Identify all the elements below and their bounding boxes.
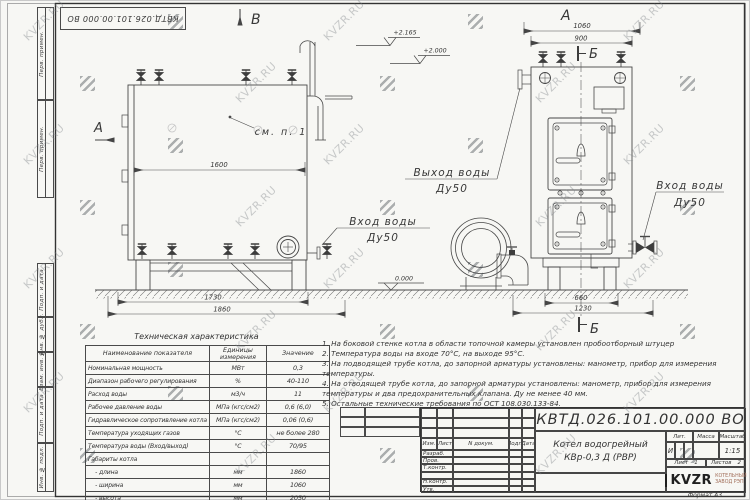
ground-line [95,290,688,299]
outlet-label: Выход воды [414,167,491,179]
col-list: Лист [437,438,453,450]
table-cell: 70/95 [266,440,329,453]
table-cell [209,453,266,466]
table-cell: - ширина [86,479,210,492]
col-izm: Изм. [421,438,437,450]
table-cell: 40-110 [266,375,329,388]
sheet-value: 1 [694,460,698,466]
table-cell: МПа (кгс/см2) [209,401,266,414]
table-cell: °С [209,427,266,440]
table-row: Температура уходящих газов°Сне более 280 [86,427,330,440]
dim-660: 660 [575,294,588,302]
table-cell: Гидравлическое сопротивление котла [86,414,210,427]
note-line: 3. На подводящей трубе котла, до запорно… [322,359,743,378]
inlet-side-label: Вход воды [349,216,417,228]
elevation-2165: +2.165 [393,30,416,37]
table-cell: МПа (кгс/см2) [209,414,266,427]
section-marker-b-bottom: Б [590,322,599,337]
lower-door [548,198,615,254]
table-cell: 1060 [266,479,329,492]
margin-box-perv-primen-2: Перв. примен. [37,100,54,198]
tech-table-body: Номинальная мощностьМВт0,3Диапазон рабоч… [86,362,330,500]
table-cell: м3/ч [209,388,266,401]
margin-box-perv-primen-1: Перв. примен. [37,7,54,100]
view-marker-a-front: А [560,8,571,24]
view-markers: В А А Б Б [93,8,599,337]
notes: 1. На боковой стенке котла в области топ… [322,339,743,410]
product-name: Котел водогрейный КВр-0,3 Д (РВР) [535,431,666,473]
top-stamp: КВТД.026.101.00.000 ВО [60,7,186,30]
table-cell: мм [209,479,266,492]
title-block: КВТД.026.101.00.000 ВО Изм. Лист N докум… [420,407,745,492]
table-cell: 0,06 (0,6) [266,414,329,427]
table-row: - ширинамм1060 [86,479,330,492]
table-cell: МВт [209,362,266,375]
inlet-side-dn: Ду50 [366,232,399,244]
upper-door [548,118,615,190]
table-row: Габариты котла [86,453,330,466]
see-note-label: см. п. 1 [255,127,308,138]
lit-value: И [666,442,675,459]
table-row: Рабочее давление водыМПа (кгс/см2)0,6 (6… [86,401,330,414]
margin-label: Инв. № подл. [39,446,45,488]
table-cell: Расход воды [86,388,210,401]
sheets-label: Листов [711,460,732,466]
margin-box-inv-podl: Инв. № подл. [37,443,54,492]
table-cell: °С [209,440,266,453]
drawing-sheet: 1600 1730 1860 1060 900 660 1230 +2.165 … [0,0,750,500]
table-cell: % [209,375,266,388]
dim-1060: 1060 [573,22,590,30]
table-cell: 0,6 (6,0) [266,401,329,414]
table-row: - длинамм1860 [86,466,330,479]
dim-1600: 1600 [210,161,227,169]
margin-box-podp-data-2: Подп. и дата [37,387,54,443]
table-cell: 11 [266,388,329,401]
product-name-line2: КВр-0,3 Д (РВР) [564,452,637,466]
section-marker-b-top: Б [589,47,598,62]
col-ndokum: N докум. [453,438,509,450]
table-cell: Габариты котла [86,453,210,466]
side-view [122,41,352,290]
table-cell: - длина [86,466,210,479]
margin-label: Перв. примен. [39,126,45,172]
margin-label: Подп. и дата [39,394,45,436]
table-cell: Температура уходящих газов [86,427,210,440]
view-marker-v: В [251,12,261,28]
row-tkontr: Т.контр. [421,464,453,471]
margin-box-vzam-inv: Взам. инв. № [37,352,54,387]
format-label: Формат А3 [660,492,750,499]
lit-label: Лит. [666,431,693,442]
valve-icons-side [137,70,331,259]
row-blank [421,472,453,479]
margin-label: Перв. примен. [39,31,45,77]
sheet-label: Лист [674,460,688,466]
table-cell: Температура воды (Вход/выход) [86,440,210,453]
front-view [518,62,657,316]
elevation-zero: 0.000 [395,276,413,283]
tech-table: Наименование показателя Единицы измерени… [85,345,330,500]
col-header: Единицы измерения [209,346,266,362]
table-cell: мм [209,466,266,479]
dim-1730: 1730 [204,294,221,302]
tech-table-title: Техническая характеристика [85,332,308,341]
sheets-value: 2 [738,460,742,466]
outlet-dn: Ду50 [435,183,468,195]
col-data: Дата [522,438,535,450]
table-cell: Рабочее давление воды [86,401,210,414]
dimensions [108,22,653,318]
table-cell: мм [209,492,266,500]
row-nkontr: Н.контр. [421,479,453,486]
elevation-2000: +2.000 [423,48,446,55]
row-razrab: Разраб. [421,450,453,457]
note-line: 1. На боковой стенке котла в области топ… [322,339,743,349]
table-row: Гидравлическое сопротивление котлаМПа (к… [86,414,330,427]
top-stamp-number: КВТД.026.101.00.000 ВО [67,14,179,23]
margin-box-inv-dubl: Инв. № дубл. [37,317,54,352]
table-cell: Номинальная мощность [86,362,210,375]
table-cell: 0,3 [266,362,329,375]
doc-number: КВТД.026.101.00.000 ВО [535,408,746,431]
margin-label: Подп. и дата [39,269,45,311]
valve-icons-front [539,52,625,67]
inlet-front-dn: Ду50 [673,197,706,209]
note-line: 2. Температура воды на входе 70°С, на вы… [322,349,743,359]
table-row: - высотамм2050 [86,492,330,500]
table-row: Номинальная мощностьМВт0,3 [86,362,330,375]
inlet-front-label: Вход воды [656,180,724,192]
table-row: Температура воды (Вход/выход)°С70/95 [86,440,330,453]
table-row: Диапазон рабочего регулирования%40-110 [86,375,330,388]
table-cell: 1860 [266,466,329,479]
scale-label: Масштаб [719,431,746,442]
elevation-marks [356,38,450,291]
mass-label: Масса [693,431,719,442]
table-cell [266,453,329,466]
table-cell: 2050 [266,492,329,500]
row-prov: Пров. [421,457,453,464]
product-name-line1: Котел водогрейный [553,439,648,453]
dim-1860: 1860 [213,306,230,314]
table-row: Расход водым3/ч11 [86,388,330,401]
fan-blower [451,218,528,290]
kvzr-logo-subtext: КОТЕЛЬНЫЙ ЗАВОД РЭП [715,474,746,485]
note-line: 4. На отводящей трубе котла, до запорной… [322,379,743,398]
flange-icon [277,236,299,258]
dim-1230: 1230 [574,305,591,313]
col-podp: Подп. [509,438,522,450]
kvzr-mark-icon [665,474,667,487]
row-utv: Утв. [421,486,453,493]
kvzr-logo-text: KVZR [670,473,712,488]
scale-value: 1:15 [719,442,746,459]
view-marker-a-side: А [93,121,103,136]
col-header: Наименование показателя [86,346,210,362]
col-header: Значение [266,346,329,362]
table-header-row: Наименование показателя Единицы измерени… [86,346,330,362]
margin-box-podp-data-1: Подп. и дата [37,263,54,317]
table-cell: Диапазон рабочего регулирования [86,375,210,388]
table-cell: - высота [86,492,210,500]
table-cell: не более 280 [266,427,329,440]
margin-label: Взам. инв. № [39,349,45,391]
dim-900: 900 [575,35,588,43]
manufacturer-logo: KVZR КОТЕЛЬНЫЙ ЗАВОД РЭП [666,467,746,493]
title-block-extension [340,407,420,437]
